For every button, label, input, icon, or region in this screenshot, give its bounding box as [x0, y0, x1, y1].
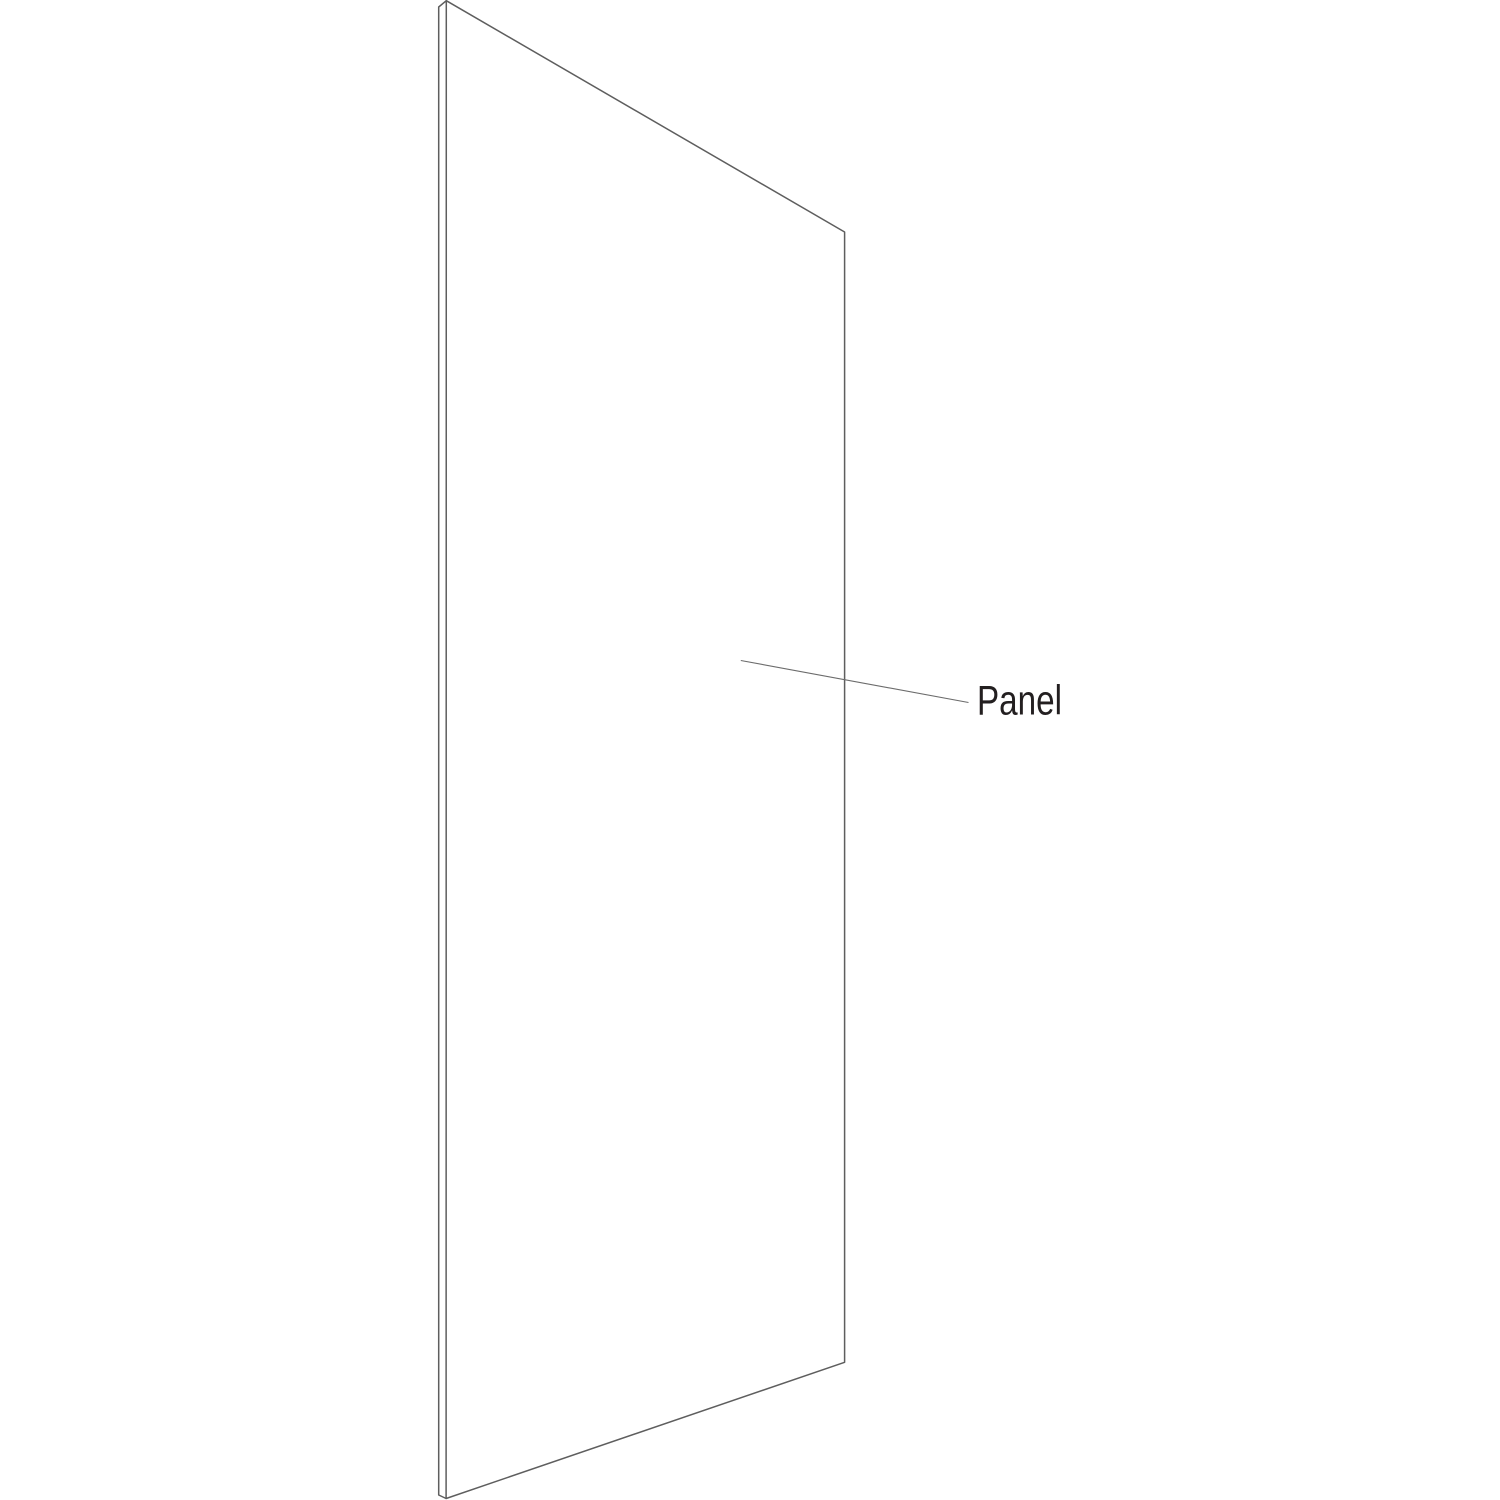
svg-text:Panel: Panel [977, 677, 1062, 724]
